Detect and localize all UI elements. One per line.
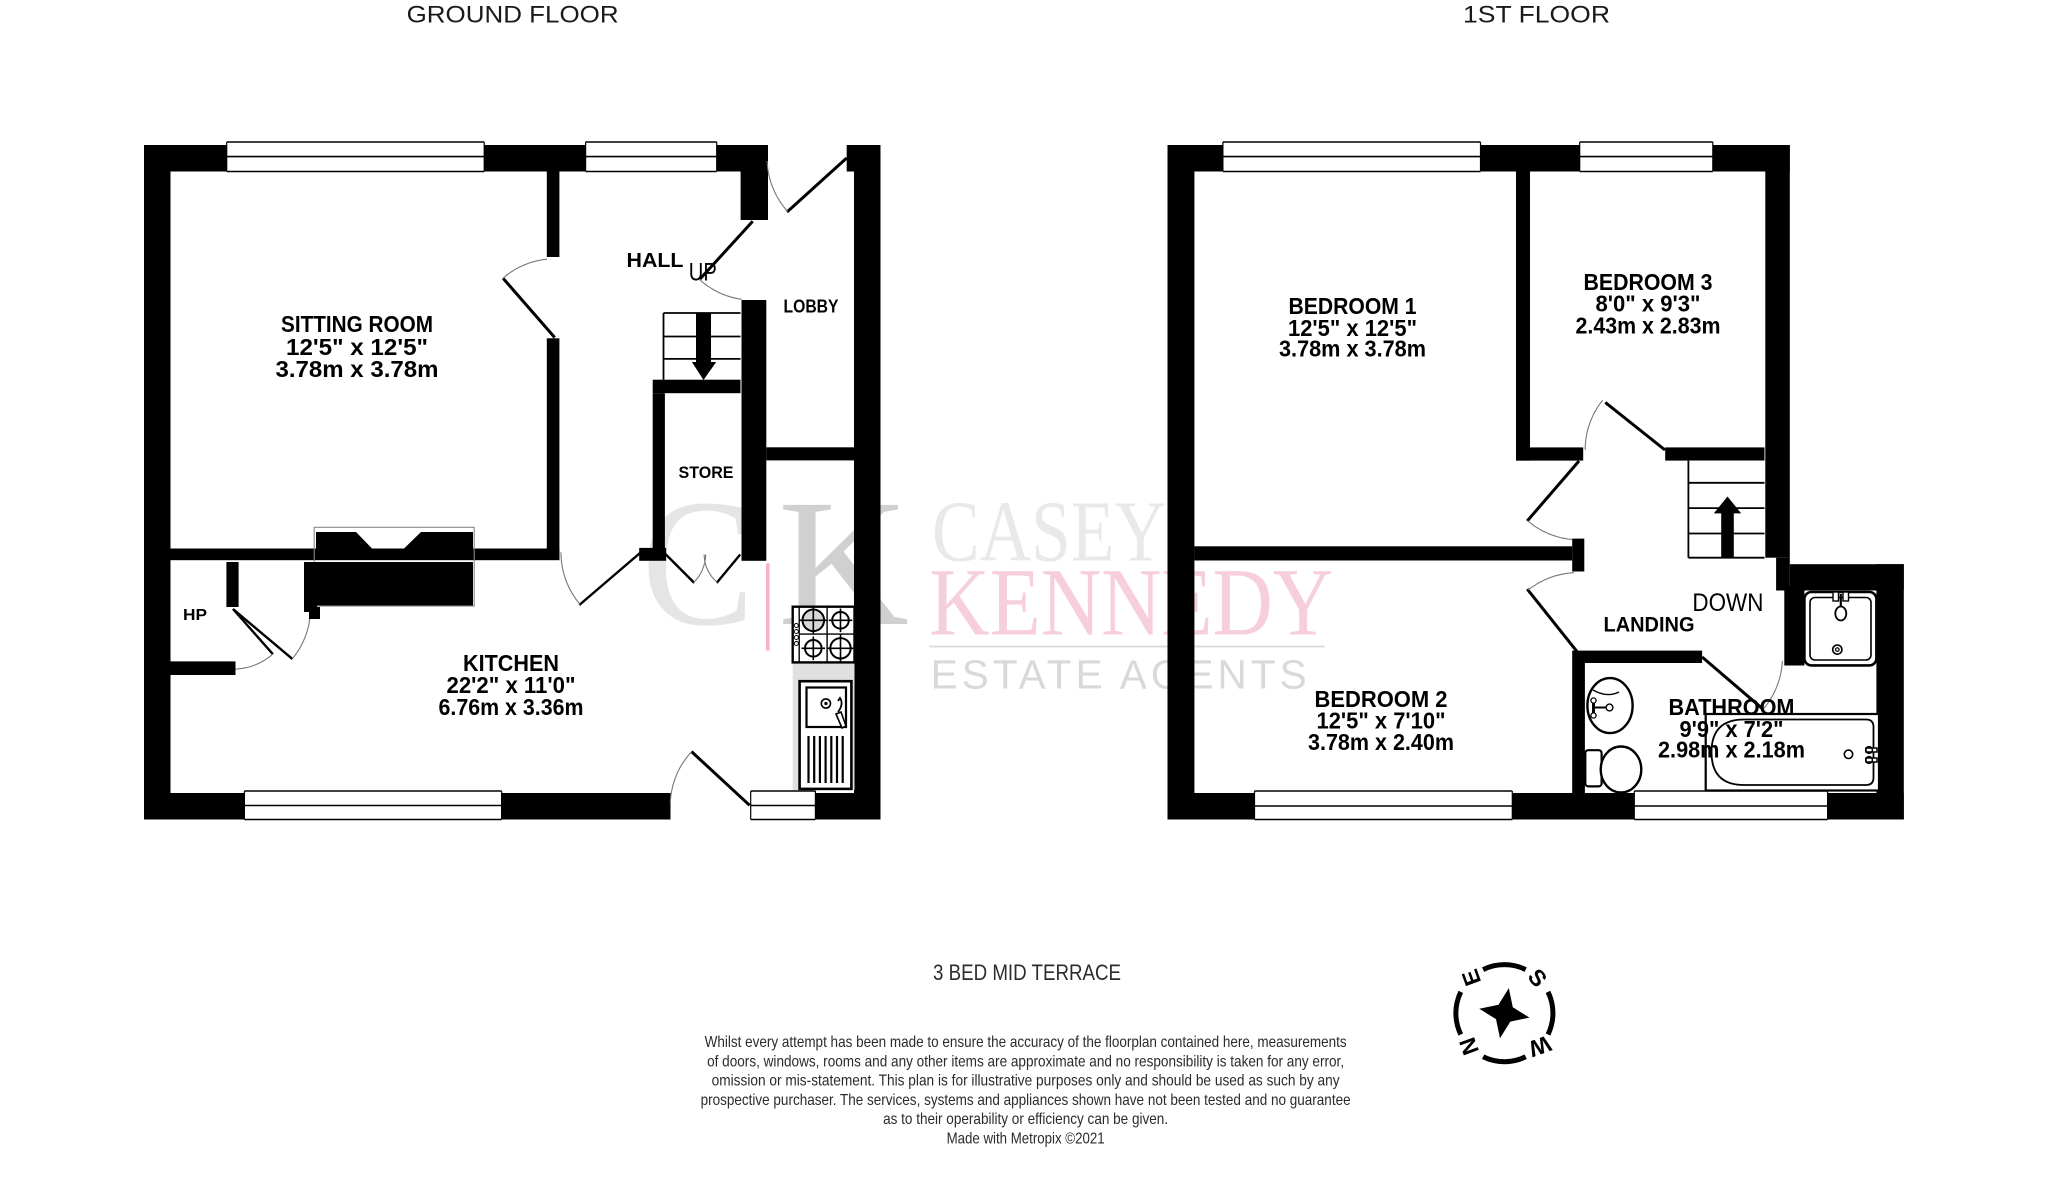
svg-text:prospective purchaser. The ser: prospective purchaser. The services, sys… <box>701 1092 1351 1109</box>
svg-text:LOBBY: LOBBY <box>784 296 839 316</box>
svg-text:1ST FLOOR: 1ST FLOOR <box>1463 3 1610 29</box>
svg-text:HALL: HALL <box>627 250 684 272</box>
svg-text:2.98m x 2.18m: 2.98m x 2.18m <box>1658 737 1805 763</box>
svg-text:3.78m x 2.40m: 3.78m x 2.40m <box>1308 729 1454 755</box>
svg-text:of doors, windows, rooms and a: of doors, windows, rooms and any other i… <box>707 1053 1344 1070</box>
svg-text:STORE: STORE <box>679 463 734 482</box>
svg-text:GROUND FLOOR: GROUND FLOOR <box>407 3 619 29</box>
svg-text:3 BED MID TERRACE: 3 BED MID TERRACE <box>933 960 1121 985</box>
svg-text:UP: UP <box>689 259 717 287</box>
svg-text:as to their operability or eff: as to their operability or efficiency ca… <box>883 1111 1168 1128</box>
svg-text:Whilst every attempt has been: Whilst every attempt has been made to en… <box>705 1034 1347 1051</box>
svg-text:omission or mis-statement. Thi: omission or mis-statement. This plan is … <box>712 1073 1340 1090</box>
svg-text:3.78m x 3.78m: 3.78m x 3.78m <box>1279 336 1426 362</box>
svg-text:LANDING: LANDING <box>1604 613 1695 636</box>
svg-text:HP: HP <box>183 607 207 624</box>
svg-text:KENNEDY: KENNEDY <box>929 549 1333 656</box>
svg-text:6.76m x 3.36m: 6.76m x 3.36m <box>439 694 584 720</box>
svg-text:DOWN: DOWN <box>1692 589 1763 617</box>
svg-text:2.43m x 2.83m: 2.43m x 2.83m <box>1576 313 1721 339</box>
svg-text:3.78m x 3.78m: 3.78m x 3.78m <box>276 356 439 382</box>
svg-text:Made with Metropix ©2021: Made with Metropix ©2021 <box>947 1131 1105 1148</box>
